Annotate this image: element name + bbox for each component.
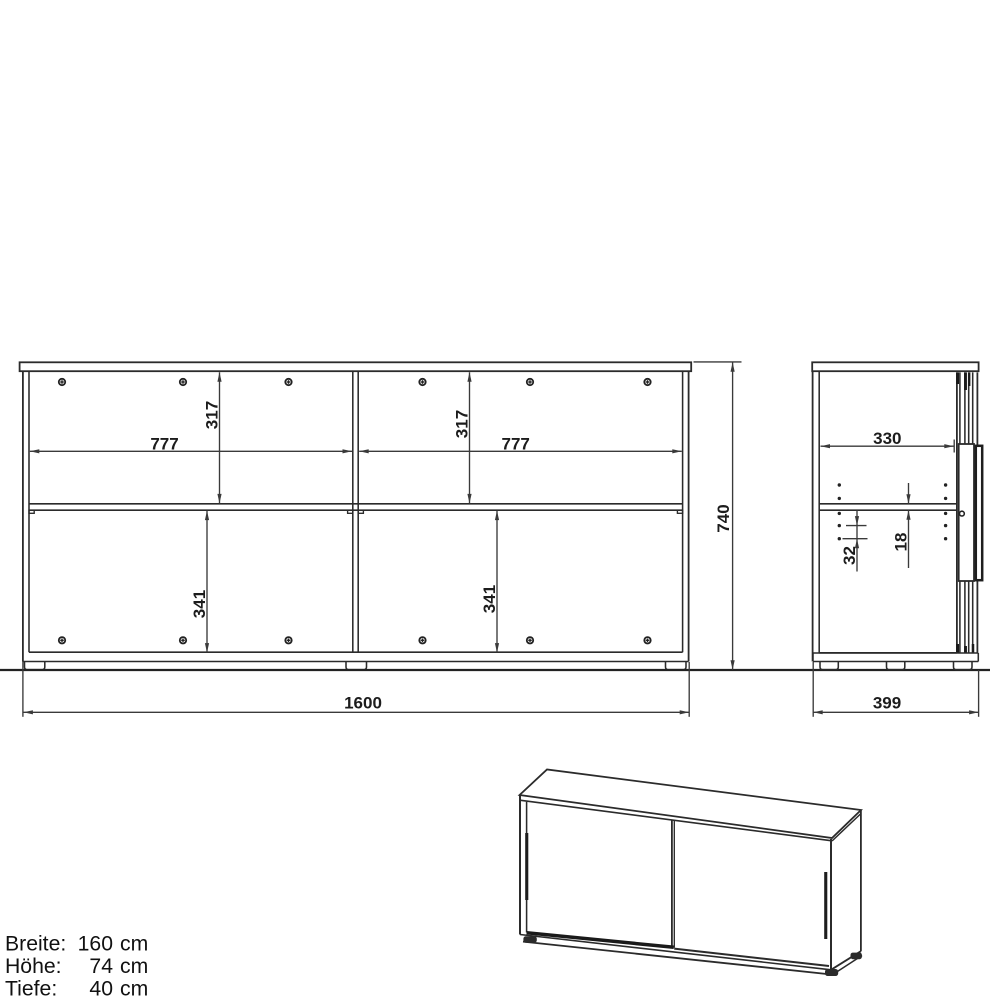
svg-text:341: 341 [190, 590, 209, 618]
svg-text:18: 18 [891, 533, 910, 552]
svg-text:cm: cm [120, 977, 148, 1000]
svg-text:740: 740 [714, 504, 733, 532]
svg-text:Breite:: Breite: [5, 933, 66, 956]
svg-text:Tiefe:: Tiefe: [5, 977, 57, 1000]
svg-text:74: 74 [89, 955, 113, 978]
svg-text:Höhe:: Höhe: [5, 955, 62, 978]
svg-text:317: 317 [453, 410, 472, 438]
svg-text:32: 32 [840, 546, 859, 565]
svg-text:777: 777 [502, 434, 530, 453]
svg-text:160: 160 [78, 933, 113, 956]
svg-text:cm: cm [120, 955, 148, 978]
svg-text:1600: 1600 [344, 694, 382, 713]
svg-text:cm: cm [120, 933, 148, 956]
svg-text:40: 40 [89, 977, 113, 1000]
svg-text:399: 399 [873, 694, 901, 713]
svg-text:341: 341 [480, 585, 499, 613]
svg-text:777: 777 [150, 434, 178, 453]
svg-text:317: 317 [203, 401, 222, 429]
svg-text:330: 330 [873, 429, 901, 448]
